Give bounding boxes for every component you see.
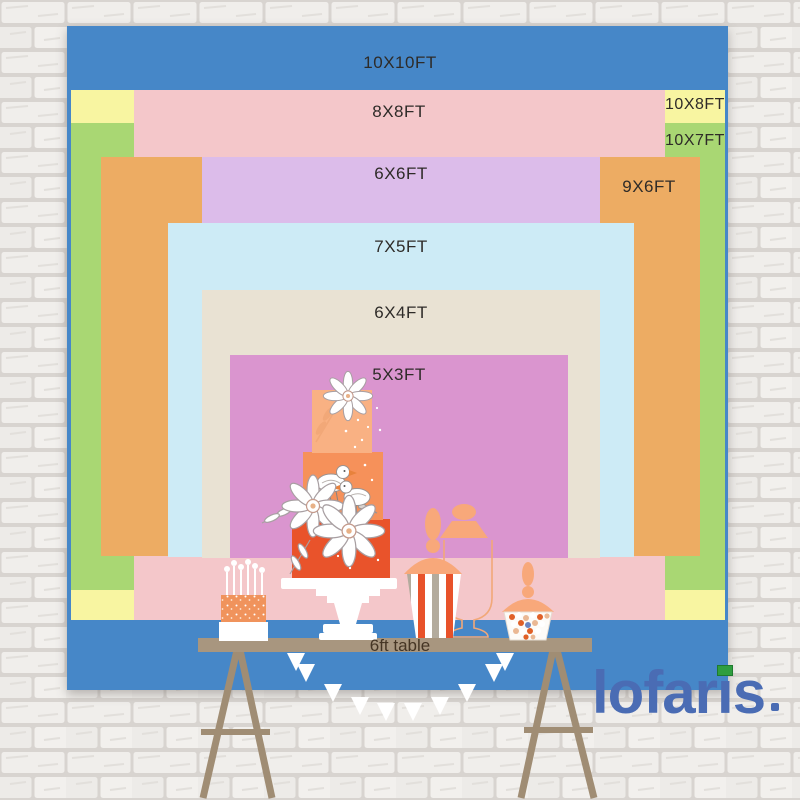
backdrop-5x3 — [230, 355, 568, 558]
backdrop-size-chart: 10X10FT 8X8FT 10X8FT 10X7FT 6X6FT 9X6FT … — [67, 26, 728, 690]
logo-dot-icon — [771, 703, 779, 711]
size-label-9x6: 9X6FT — [584, 177, 714, 197]
size-label-10x7: 10X7FT — [652, 132, 738, 150]
logo-green-block-icon — [717, 665, 733, 676]
size-label-6x6: 6X6FT — [336, 164, 466, 184]
size-label-7x5: 7X5FT — [336, 237, 466, 257]
size-label-5x3: 5X3FT — [334, 365, 464, 385]
size-label-6x4: 6X4FT — [336, 303, 466, 323]
size-label-10x8: 10X8FT — [652, 96, 738, 114]
product-image: 10X10FT 8X8FT 10X8FT 10X7FT 6X6FT 9X6FT … — [0, 0, 800, 800]
size-label-8x8: 8X8FT — [334, 102, 464, 122]
brand-name: lofaris — [592, 659, 765, 726]
size-label-10x10: 10X10FT — [335, 53, 465, 73]
brand-logo: lofaris — [592, 658, 765, 730]
